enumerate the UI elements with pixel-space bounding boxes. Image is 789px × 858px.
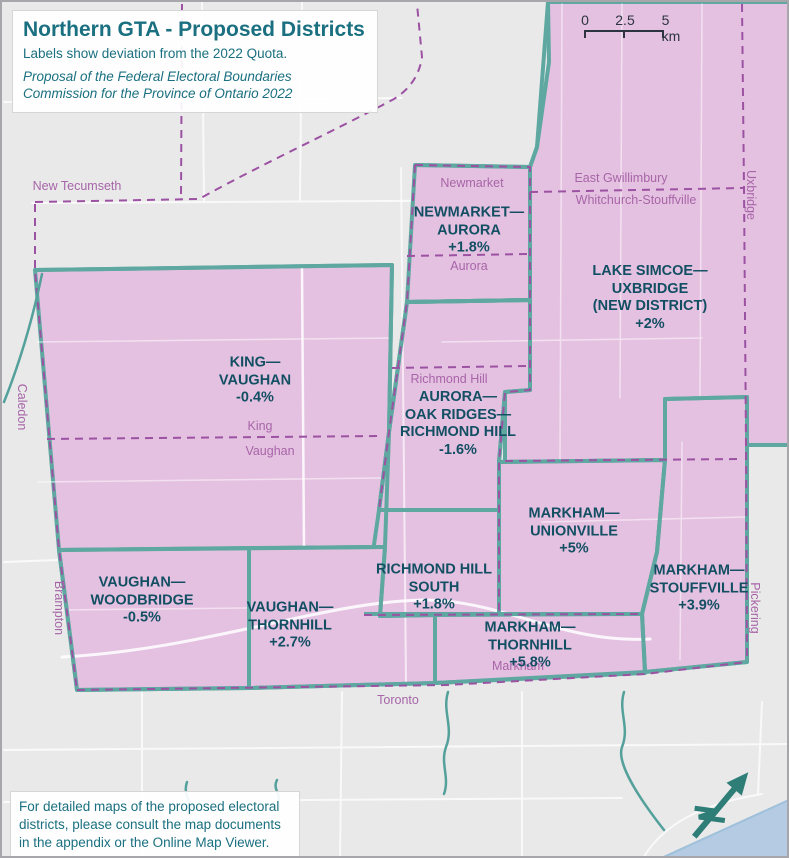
scale-start: 0: [581, 12, 589, 28]
scale-mid: 2.5: [615, 12, 634, 28]
district-polygon-newmarket-aurora: [407, 165, 530, 302]
scale-end: 5 km: [662, 12, 681, 44]
map: New Tecumseth Caledon Brampton Newmarket…: [0, 0, 789, 858]
attribution: Proposal of the Federal Electoral Bounda…: [23, 69, 367, 103]
footer-panel: For detailed maps of the proposed electo…: [10, 791, 300, 858]
subtitle: Labels show deviation from the 2022 Quot…: [23, 46, 367, 61]
district-polygon-markham-unionville: [499, 460, 665, 614]
district-polygon-king-vaughan: [35, 265, 392, 550]
map-canvas: [2, 2, 789, 858]
district-polygon-vaughan-woodbridge: [59, 548, 249, 690]
page-title: Northern GTA - Proposed Districts: [23, 18, 367, 42]
scale-bar: 0 2.5 5 km: [578, 12, 678, 38]
title-panel: Northern GTA - Proposed Districts Labels…: [12, 10, 378, 113]
scale-bar-rule: [584, 30, 664, 39]
district-polygon-lake-simcoe-uxbridge: [505, 2, 789, 462]
footer-text: For detailed maps of the proposed electo…: [19, 799, 281, 850]
